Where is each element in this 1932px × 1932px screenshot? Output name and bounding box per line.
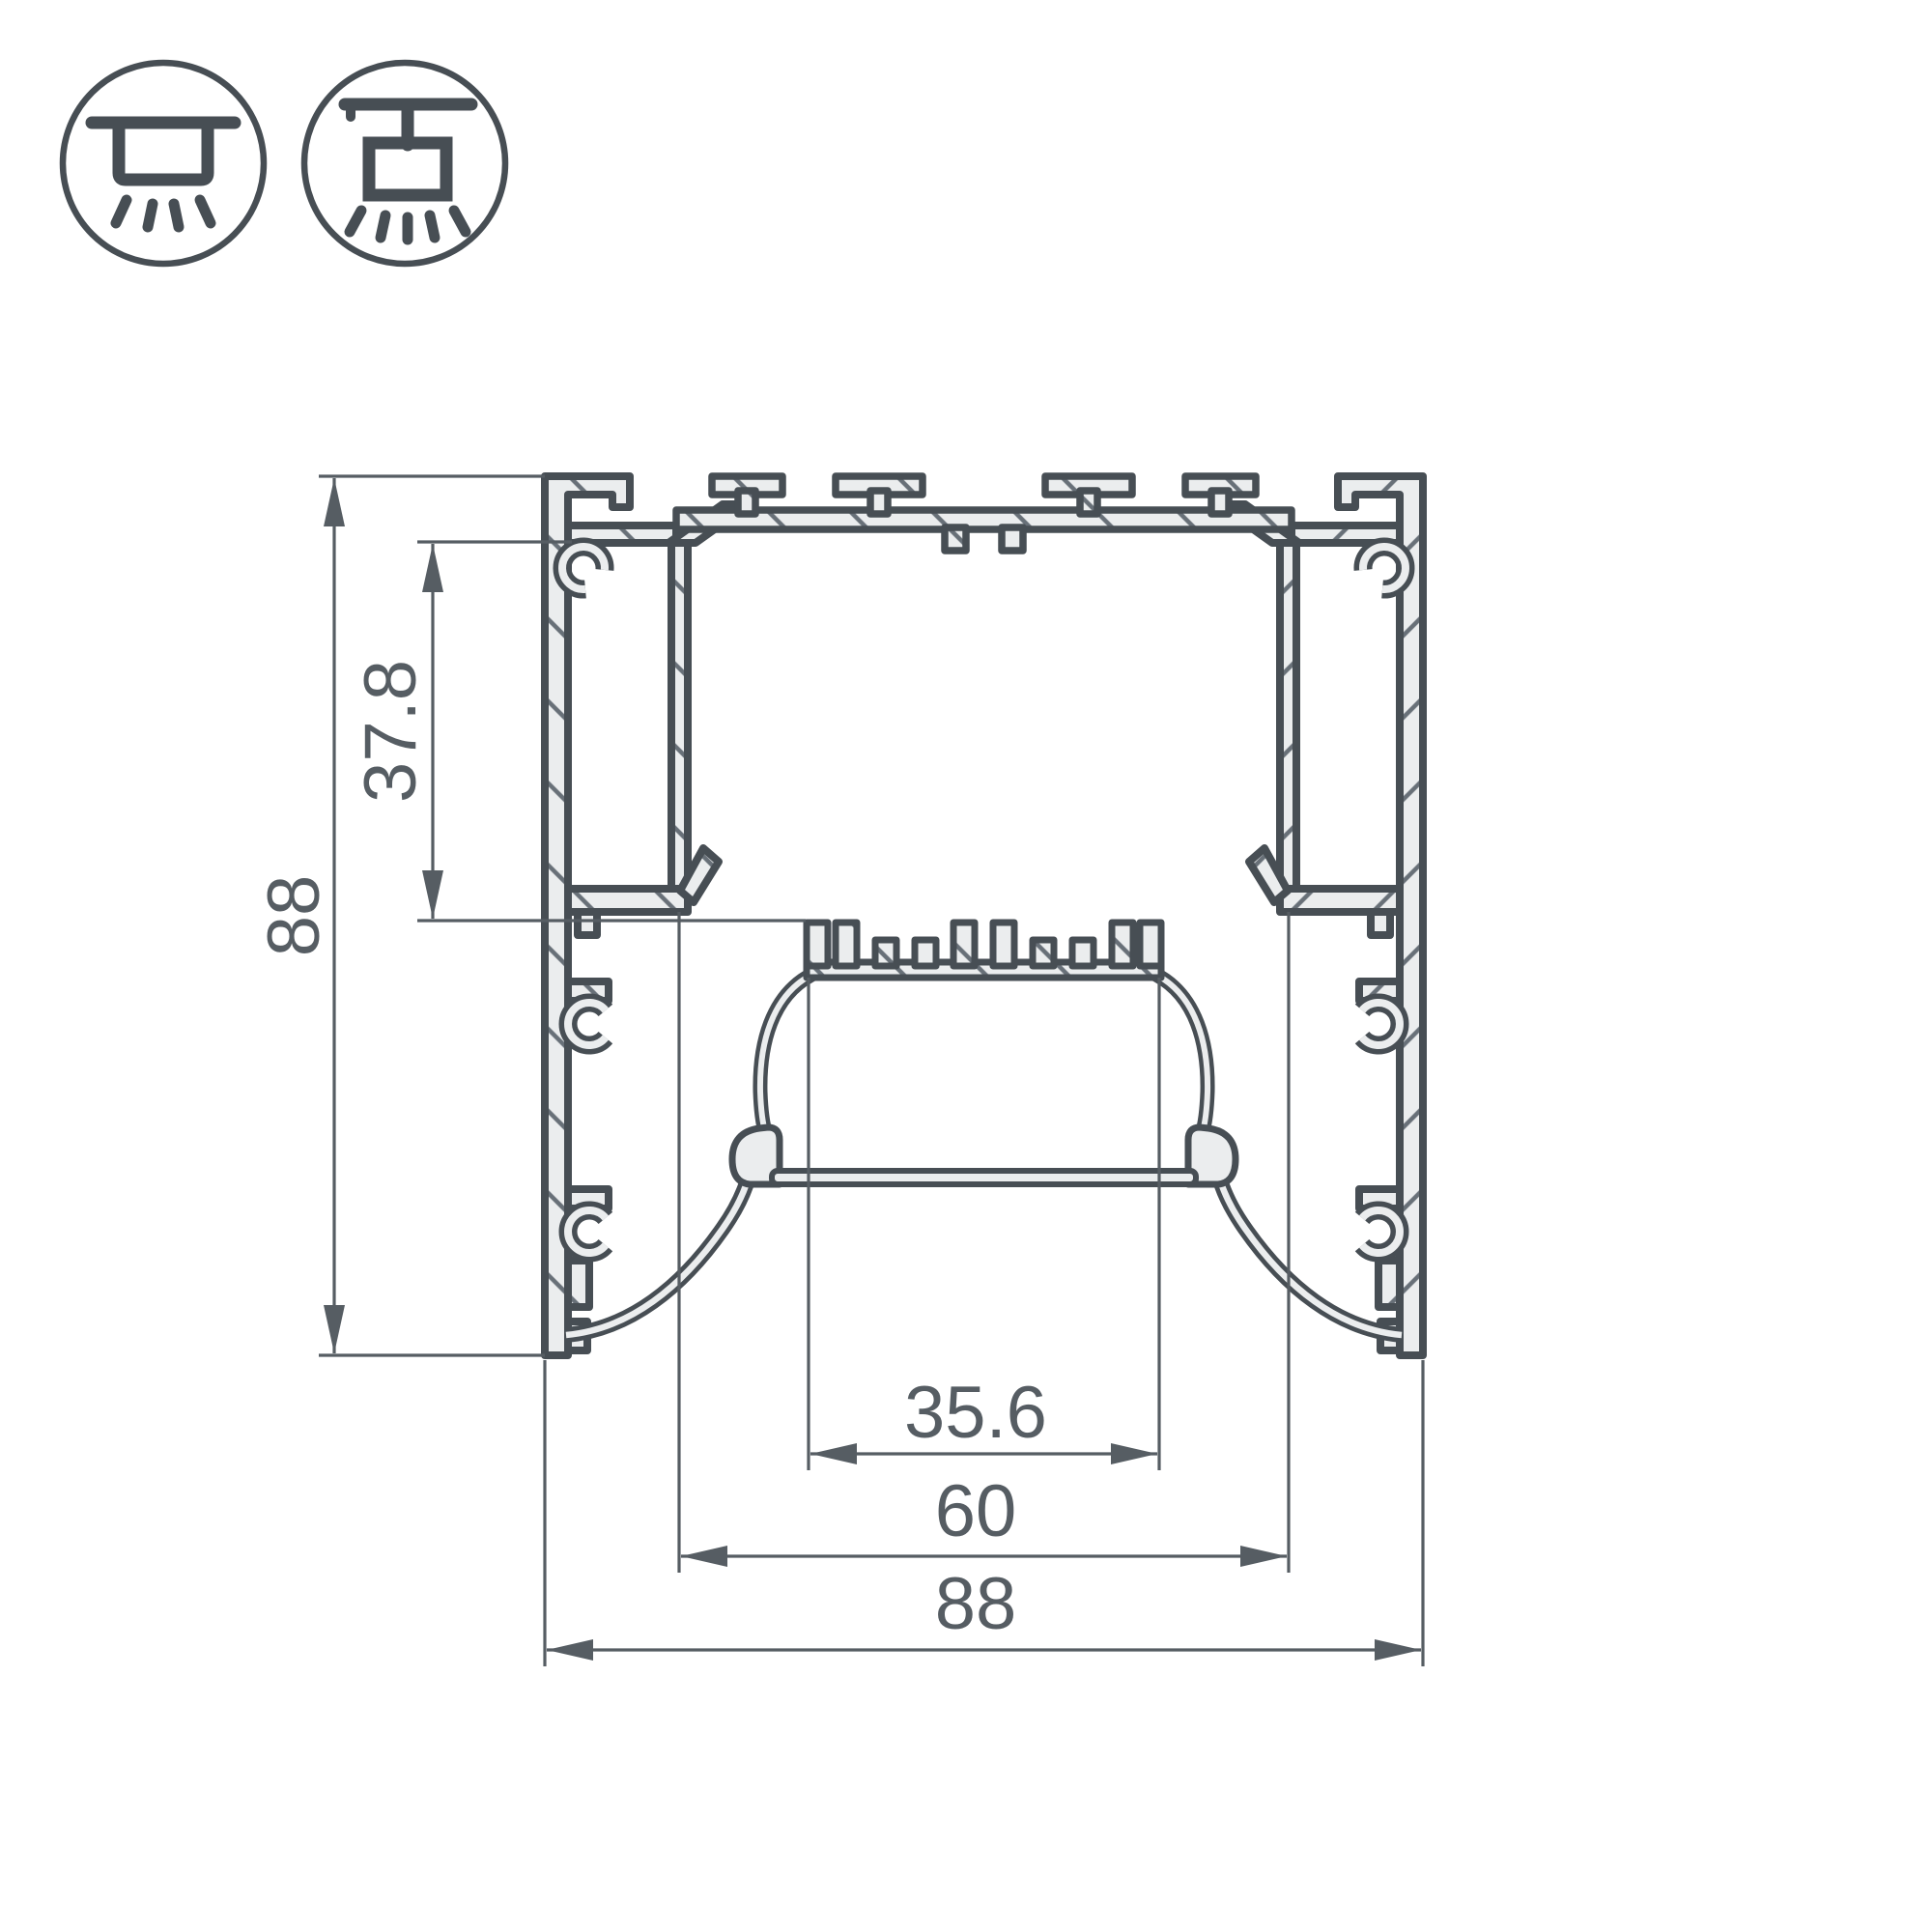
profile-drawing-page: 88 37.8 35.6 60 88 bbox=[0, 0, 1932, 1932]
profile-cross-section-drawing: 88 37.8 35.6 60 88 bbox=[0, 0, 1932, 1932]
extrusion-body bbox=[545, 476, 1423, 1355]
dim-overall-height: 88 bbox=[253, 875, 335, 957]
dimension-arrowheads bbox=[324, 478, 1421, 1661]
top-mounting-deck bbox=[676, 476, 1292, 551]
led-module-heatsink bbox=[807, 923, 1161, 978]
diffuser-lens bbox=[772, 1171, 1196, 1184]
dim-overall-width: 88 bbox=[935, 1563, 1017, 1645]
dim-cavity-height: 37.8 bbox=[350, 660, 432, 803]
pendant-mount-luminaire-icon bbox=[304, 63, 505, 264]
mount-icons bbox=[63, 63, 505, 264]
deck-tooth bbox=[1002, 527, 1023, 551]
dim-lens-width: 35.6 bbox=[904, 1372, 1047, 1454]
deck-tooth bbox=[945, 527, 966, 551]
surface-mount-luminaire-icon bbox=[63, 63, 264, 264]
dimension-annotations bbox=[319, 476, 1423, 1666]
dim-opening-width: 60 bbox=[935, 1470, 1017, 1552]
